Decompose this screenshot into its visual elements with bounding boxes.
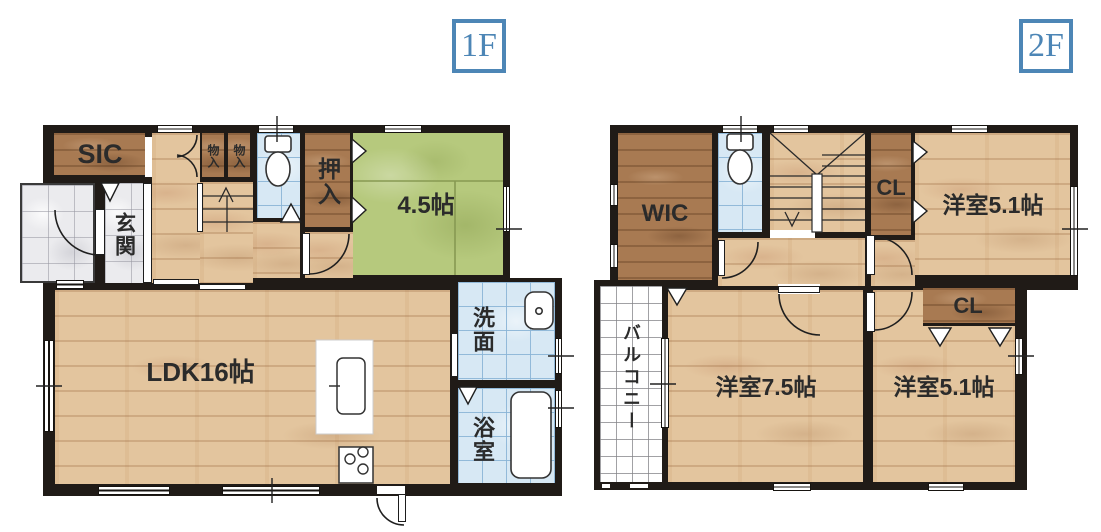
window-tatami-east <box>503 186 510 232</box>
window-bath-east <box>555 390 562 428</box>
label-monoire-1: 物入 <box>203 137 223 175</box>
stairs-2f-landing <box>770 230 815 238</box>
label-sic: SIC <box>68 141 132 167</box>
window-wic-west-1 <box>610 184 618 206</box>
stairs-1f-landing <box>197 183 203 232</box>
opening-sic-hall <box>145 137 152 177</box>
label-yoshitsu-right-bottom: 洋室5.1帖 <box>882 374 1006 400</box>
window-2f-south-2 <box>928 483 964 491</box>
hall-1f-stairs-area <box>200 182 253 283</box>
window-2f-top-2 <box>773 125 809 133</box>
room-ldk <box>55 290 450 484</box>
window-1f-top-2 <box>258 125 294 133</box>
window-2f-top-1 <box>722 125 758 133</box>
label-tatami-45: 4.5帖 <box>386 193 466 219</box>
window-ldk-west <box>44 340 54 432</box>
label-balcony: バルコニー <box>617 288 645 468</box>
window-ldk-south-2 <box>222 486 320 495</box>
door-leaf-yoshitsu-rb <box>866 292 875 332</box>
door-leaf-yoshitsu-rt <box>866 235 875 275</box>
toilet-2f-door-leaf <box>718 240 725 276</box>
label-wic: WIC <box>636 201 694 227</box>
label-ldk: LDK16帖 <box>128 358 273 386</box>
window-1f-top-3 <box>384 125 422 133</box>
toilet-2f <box>718 133 762 232</box>
label-bath: 浴室 <box>469 411 495 469</box>
window-yoshitsu-rb-east <box>1015 338 1023 375</box>
window-balcony-door <box>661 338 669 428</box>
tatami-door-leaf <box>302 233 310 275</box>
floor-plan-canvas: 1F 2F <box>0 0 1101 532</box>
window-yoshitsu-rt-east <box>1070 186 1078 276</box>
window-2f-south-1 <box>773 483 811 491</box>
label-senmen: 洗面 <box>469 301 495 359</box>
window-2f-top-3 <box>951 125 988 133</box>
label-cl-bottom: CL <box>948 294 988 318</box>
hall-1f-west <box>152 133 200 283</box>
window-wic-west-2 <box>610 244 618 268</box>
sliding-door-ldk-senmen <box>451 333 458 377</box>
back-door-gap <box>377 486 405 494</box>
hall-2f-east <box>871 240 915 286</box>
balcony-drain-gap-1 <box>602 484 610 488</box>
window-1f-top-1 <box>157 125 193 133</box>
sliding-door-hall-ldk-panel-1 <box>153 279 199 285</box>
label-monoire-2: 物入 <box>229 137 249 175</box>
label-oshiire: 押入 <box>314 152 340 212</box>
back-door-leaf <box>398 494 406 522</box>
hall-1f-east <box>305 232 353 278</box>
label-genkan: 玄関 <box>111 207 137 263</box>
label-cl-top: CL <box>874 176 908 200</box>
front-door-leaf <box>95 209 105 255</box>
sliding-door-hall-ldk-panel-2 <box>199 284 246 290</box>
toilet-1f <box>257 133 300 218</box>
window-ldk-south-1 <box>98 486 170 495</box>
hall-2f <box>718 238 865 286</box>
window-senmen-east <box>555 338 562 374</box>
hall-1f-center <box>253 222 300 278</box>
floor-2-badge: 2F <box>1019 19 1073 73</box>
label-yoshitsu-right-top: 洋室5.1帖 <box>928 192 1058 218</box>
label-yoshitsu-left: 洋室7.5帖 <box>704 374 828 400</box>
door-leaf-yoshitsu-left <box>778 286 820 293</box>
window-ldk-northwest <box>56 280 84 289</box>
balcony-drain-gap-2 <box>630 484 648 488</box>
stairs-2f <box>770 133 865 232</box>
floor-1-badge: 1F <box>452 19 506 73</box>
porch <box>20 183 95 283</box>
genkan-step <box>143 183 152 283</box>
